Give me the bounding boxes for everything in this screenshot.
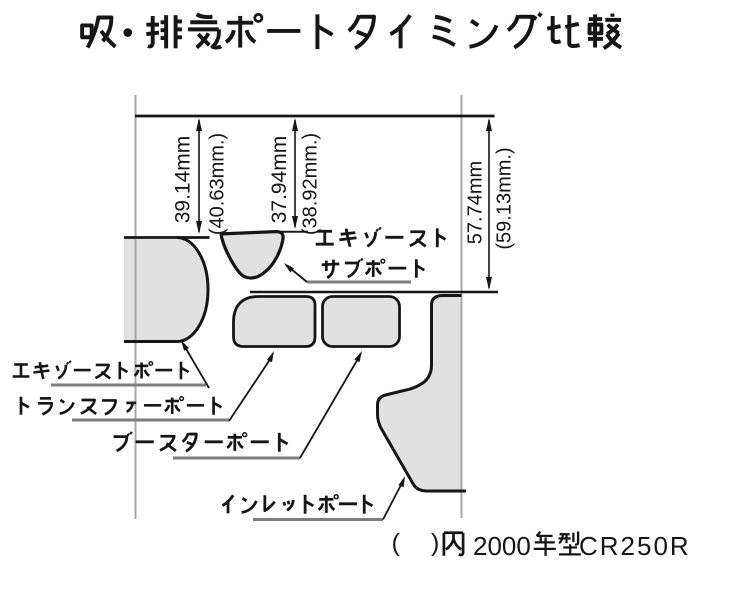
svg-text:39.14mm: 39.14mm	[172, 136, 195, 224]
svg-text:CR250R: CR250R	[579, 531, 691, 561]
svg-text:37.94mm: 37.94mm	[268, 136, 291, 224]
svg-text:57.74mm: 57.74mm	[465, 161, 487, 244]
svg-text:2000: 2000	[473, 531, 531, 561]
svg-text:(59.13mm.): (59.13mm.)	[494, 147, 516, 249]
svg-text:(38.92mm.): (38.92mm.)	[300, 133, 322, 235]
svg-text:): )	[431, 529, 439, 557]
svg-text:(40.63mm.): (40.63mm.)	[207, 133, 229, 235]
svg-text:(: (	[392, 529, 401, 557]
